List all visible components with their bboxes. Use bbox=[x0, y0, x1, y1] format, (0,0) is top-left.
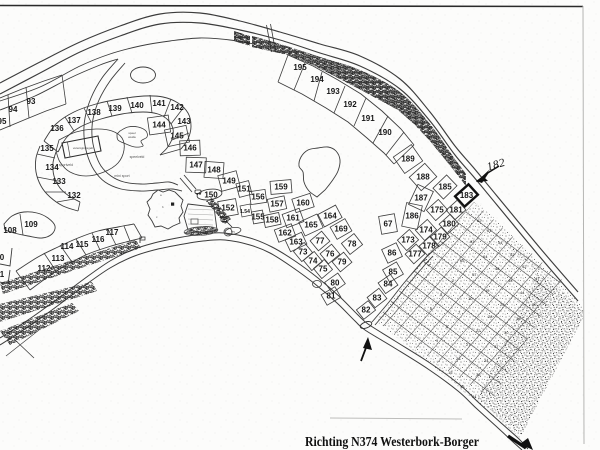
svg-text:192: 192 bbox=[343, 100, 357, 109]
svg-text:49: 49 bbox=[485, 288, 490, 293]
svg-text:156: 156 bbox=[251, 193, 265, 202]
svg-text:136: 136 bbox=[50, 124, 64, 133]
svg-text:95: 95 bbox=[0, 117, 7, 126]
svg-text:138: 138 bbox=[87, 108, 101, 117]
svg-text:194: 194 bbox=[310, 75, 324, 84]
svg-text:22: 22 bbox=[476, 328, 481, 333]
svg-text:193: 193 bbox=[326, 87, 340, 96]
svg-text:143: 143 bbox=[177, 117, 191, 126]
svg-text:164: 164 bbox=[323, 212, 337, 221]
svg-text:34: 34 bbox=[472, 394, 477, 399]
svg-text:114: 114 bbox=[61, 242, 74, 251]
svg-text:160: 160 bbox=[296, 199, 310, 208]
svg-text:165: 165 bbox=[304, 221, 318, 230]
svg-text:73: 73 bbox=[299, 248, 308, 257]
svg-text:183: 183 bbox=[460, 191, 474, 200]
svg-text:54: 54 bbox=[498, 240, 503, 245]
svg-text:173: 173 bbox=[401, 236, 415, 245]
svg-text:86: 86 bbox=[388, 249, 397, 258]
svg-text:161: 161 bbox=[286, 214, 300, 223]
svg-text:185: 185 bbox=[438, 183, 452, 192]
svg-text:13: 13 bbox=[460, 384, 465, 389]
svg-text:188: 188 bbox=[416, 173, 430, 182]
svg-text:83: 83 bbox=[373, 294, 382, 303]
svg-text:162: 162 bbox=[278, 229, 292, 238]
svg-text:1.54: 1.54 bbox=[240, 209, 250, 215]
svg-text:verenigingsgeb: verenigingsgeb bbox=[73, 146, 94, 150]
svg-text:169: 169 bbox=[334, 225, 348, 234]
svg-text:74: 74 bbox=[309, 257, 318, 266]
svg-text:57: 57 bbox=[472, 272, 477, 277]
svg-text:132: 132 bbox=[67, 191, 81, 200]
svg-text:135: 135 bbox=[40, 144, 54, 153]
svg-text:47: 47 bbox=[535, 276, 540, 281]
svg-text:133: 133 bbox=[52, 177, 66, 186]
svg-text:116: 116 bbox=[92, 235, 105, 244]
svg-text:10: 10 bbox=[468, 296, 473, 301]
svg-text:65: 65 bbox=[460, 258, 465, 263]
svg-text:36: 36 bbox=[476, 372, 481, 377]
svg-text:36: 36 bbox=[516, 316, 521, 321]
svg-text:52: 52 bbox=[510, 252, 515, 257]
svg-text:134: 134 bbox=[45, 163, 59, 172]
svg-text:64: 64 bbox=[483, 254, 488, 259]
svg-text:187: 187 bbox=[414, 194, 428, 203]
svg-text:93: 93 bbox=[27, 97, 36, 106]
svg-text:175: 175 bbox=[430, 206, 444, 215]
svg-text:146: 146 bbox=[183, 144, 197, 153]
svg-text:113: 113 bbox=[52, 254, 65, 263]
svg-text:15: 15 bbox=[448, 370, 453, 375]
svg-text:94: 94 bbox=[9, 105, 18, 114]
svg-text:79: 79 bbox=[338, 258, 347, 267]
svg-text:27: 27 bbox=[466, 342, 471, 347]
svg-text:177: 177 bbox=[408, 250, 422, 259]
svg-text:42: 42 bbox=[522, 264, 527, 269]
svg-text:80: 80 bbox=[331, 279, 340, 288]
svg-text:sportveld: sportveld bbox=[59, 163, 73, 167]
svg-text:149: 149 bbox=[222, 177, 236, 186]
svg-text:85: 85 bbox=[389, 268, 398, 277]
svg-text:weide: weide bbox=[128, 135, 136, 139]
svg-text:137: 137 bbox=[67, 116, 81, 125]
svg-text:157: 157 bbox=[270, 200, 284, 209]
svg-text:30: 30 bbox=[504, 330, 509, 335]
svg-text:61: 61 bbox=[487, 228, 492, 233]
svg-text:28: 28 bbox=[488, 314, 493, 319]
svg-text:0: 0 bbox=[0, 253, 5, 262]
svg-text:81: 81 bbox=[327, 292, 336, 301]
svg-text:186: 186 bbox=[405, 212, 419, 221]
svg-text:75: 75 bbox=[319, 265, 328, 274]
svg-text:108: 108 bbox=[3, 226, 17, 235]
svg-text:195: 195 bbox=[293, 63, 307, 72]
svg-text:1: 1 bbox=[0, 270, 5, 279]
svg-text:77: 77 bbox=[316, 237, 325, 246]
svg-text:63: 63 bbox=[470, 239, 475, 244]
svg-text:48: 48 bbox=[495, 266, 500, 271]
svg-text:78: 78 bbox=[348, 240, 357, 249]
svg-text:117: 117 bbox=[106, 228, 119, 237]
svg-text:84: 84 bbox=[384, 280, 393, 289]
svg-text:141: 141 bbox=[152, 99, 166, 108]
svg-text:39: 39 bbox=[532, 302, 537, 307]
svg-text:67: 67 bbox=[384, 220, 393, 229]
svg-text:140: 140 bbox=[130, 101, 144, 110]
svg-text:Richting N374 Westerbork-Borge: Richting N374 Westerbork-Borger bbox=[305, 434, 479, 449]
svg-text:21: 21 bbox=[456, 356, 461, 361]
svg-text:139: 139 bbox=[108, 104, 122, 113]
svg-text:34: 34 bbox=[484, 358, 489, 363]
svg-text:191: 191 bbox=[361, 114, 375, 123]
svg-text:190: 190 bbox=[378, 128, 392, 137]
svg-text:mini sport: mini sport bbox=[114, 174, 129, 178]
svg-text:45: 45 bbox=[508, 278, 513, 283]
svg-text:174: 174 bbox=[419, 226, 433, 235]
svg-text:76: 76 bbox=[326, 250, 335, 259]
svg-text:109: 109 bbox=[24, 220, 38, 229]
svg-text:158: 158 bbox=[265, 216, 279, 225]
svg-text:189: 189 bbox=[401, 155, 415, 164]
svg-text:115: 115 bbox=[76, 240, 89, 249]
svg-text:29: 29 bbox=[500, 302, 505, 307]
svg-text:145: 145 bbox=[170, 132, 184, 141]
svg-text:82: 82 bbox=[362, 306, 371, 315]
svg-text:148: 148 bbox=[207, 166, 221, 175]
svg-text:150: 150 bbox=[204, 191, 218, 200]
svg-text:181: 181 bbox=[449, 206, 463, 215]
svg-text:37: 37 bbox=[494, 344, 499, 349]
svg-text:147: 147 bbox=[189, 161, 203, 170]
svg-text:142: 142 bbox=[170, 103, 184, 112]
svg-text:44: 44 bbox=[520, 290, 525, 295]
svg-text:144: 144 bbox=[152, 121, 166, 130]
svg-text:62: 62 bbox=[477, 218, 482, 223]
svg-text:159: 159 bbox=[274, 183, 288, 192]
svg-text:speelveld: speelveld bbox=[130, 155, 145, 159]
